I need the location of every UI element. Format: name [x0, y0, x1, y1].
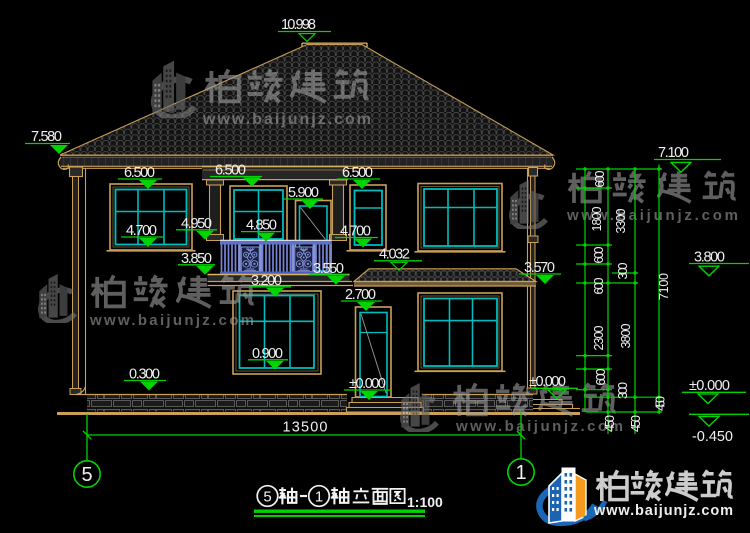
svg-text:4.850: 4.850: [246, 218, 277, 234]
svg-text:2.700: 2.700: [345, 287, 376, 303]
svg-text:450: 450: [603, 415, 617, 432]
svg-text:±0.000: ±0.000: [529, 374, 566, 390]
svg-text:7.100: 7.100: [658, 145, 689, 161]
svg-text:±0.000: ±0.000: [349, 376, 386, 392]
svg-text:6.500: 6.500: [124, 165, 155, 181]
svg-text:7.580: 7.580: [31, 129, 62, 145]
svg-text:1800: 1800: [590, 206, 604, 231]
svg-text:6.500: 6.500: [342, 165, 373, 181]
svg-text:3800: 3800: [619, 323, 633, 348]
svg-text:600: 600: [594, 368, 608, 385]
svg-text:3.570: 3.570: [524, 260, 555, 276]
svg-text:5: 5: [263, 489, 271, 506]
svg-text:6.500: 6.500: [215, 163, 246, 179]
svg-text:-0.450: -0.450: [692, 429, 733, 445]
svg-text:1: 1: [315, 489, 323, 506]
svg-text:10.998: 10.998: [281, 17, 316, 33]
svg-text:3.800: 3.800: [694, 250, 725, 266]
svg-text:0.900: 0.900: [252, 346, 283, 362]
svg-text:4.700: 4.700: [340, 224, 371, 240]
svg-text:www.baijunjz.com: www.baijunjz.com: [455, 418, 624, 435]
svg-text:3300: 3300: [614, 208, 628, 233]
svg-text:0.300: 0.300: [129, 367, 160, 383]
svg-text:3.200: 3.200: [251, 273, 282, 289]
svg-text:3.550: 3.550: [313, 261, 344, 277]
svg-text:±0.000: ±0.000: [689, 378, 730, 394]
svg-text:300: 300: [616, 262, 630, 279]
svg-text:www.baijunjz.com: www.baijunjz.com: [593, 503, 733, 519]
svg-text:4.950: 4.950: [181, 216, 212, 232]
svg-text:450: 450: [654, 396, 668, 411]
svg-text:4.032: 4.032: [379, 247, 410, 263]
svg-text:7100: 7100: [657, 273, 671, 300]
svg-text:4.700: 4.700: [126, 223, 157, 239]
svg-text:450: 450: [629, 415, 643, 432]
svg-text:1:100: 1:100: [407, 494, 443, 510]
svg-text:600: 600: [593, 170, 607, 187]
svg-text:13500: 13500: [283, 420, 328, 436]
svg-text:1: 1: [515, 462, 526, 484]
svg-text:600: 600: [592, 246, 606, 263]
svg-text:5.900: 5.900: [288, 185, 319, 201]
svg-text:2300: 2300: [592, 325, 606, 350]
svg-text:3.850: 3.850: [181, 251, 212, 267]
svg-text:www.baijunjz.com: www.baijunjz.com: [89, 312, 255, 329]
svg-text:5: 5: [81, 464, 92, 486]
svg-text:www.baijunjz.com: www.baijunjz.com: [202, 111, 372, 128]
svg-text:300: 300: [616, 382, 630, 399]
svg-text:600: 600: [592, 277, 606, 294]
